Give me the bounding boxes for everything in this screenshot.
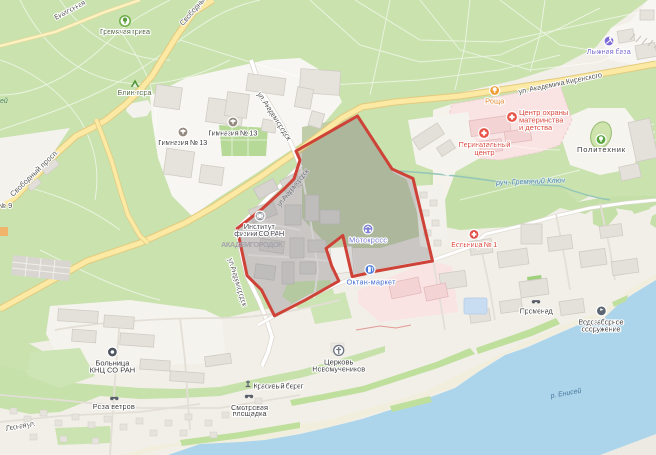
svg-text:Больница № 1: Больница № 1 bbox=[451, 240, 497, 249]
svg-text:сооружение: сооружение bbox=[582, 325, 621, 334]
svg-text:Красивый берег: Красивый берег bbox=[254, 382, 304, 391]
svg-text:Лыжная база: Лыжная база bbox=[587, 47, 632, 56]
svg-text:Гимназия № 13: Гимназия № 13 bbox=[208, 129, 257, 138]
svg-text:ей: ей bbox=[0, 97, 8, 105]
svg-text:Гимназия № 13: Гимназия № 13 bbox=[158, 138, 207, 147]
svg-text:Роща: Роща bbox=[485, 97, 505, 106]
svg-text:центр: центр bbox=[474, 148, 494, 157]
svg-text:Променад: Променад bbox=[520, 307, 554, 316]
svg-text:Роза ветров: Роза ветров bbox=[93, 402, 135, 411]
svg-text:и детства: и детства bbox=[519, 123, 553, 132]
svg-text:физики СО РАН: физики СО РАН bbox=[234, 229, 284, 238]
svg-text:№ 9: № 9 bbox=[0, 201, 12, 210]
svg-text:Мотокросс: Мотокросс bbox=[349, 236, 387, 245]
svg-text:АКАДЕМГОРОДОК: АКАДЕМГОРОДОК bbox=[221, 240, 283, 249]
svg-text:площадка: площадка bbox=[233, 409, 268, 418]
svg-text:Новомучеников: Новомучеников bbox=[312, 364, 365, 373]
svg-text:Гремячая грива: Гремячая грива bbox=[100, 27, 151, 36]
svg-text:Блин-гора: Блин-гора bbox=[118, 88, 153, 97]
svg-text:Октан-маркет: Октан-маркет bbox=[347, 278, 397, 287]
svg-text:Политехник: Политехник bbox=[577, 145, 626, 154]
svg-text:КНЦ СО РАН: КНЦ СО РАН bbox=[90, 366, 136, 375]
